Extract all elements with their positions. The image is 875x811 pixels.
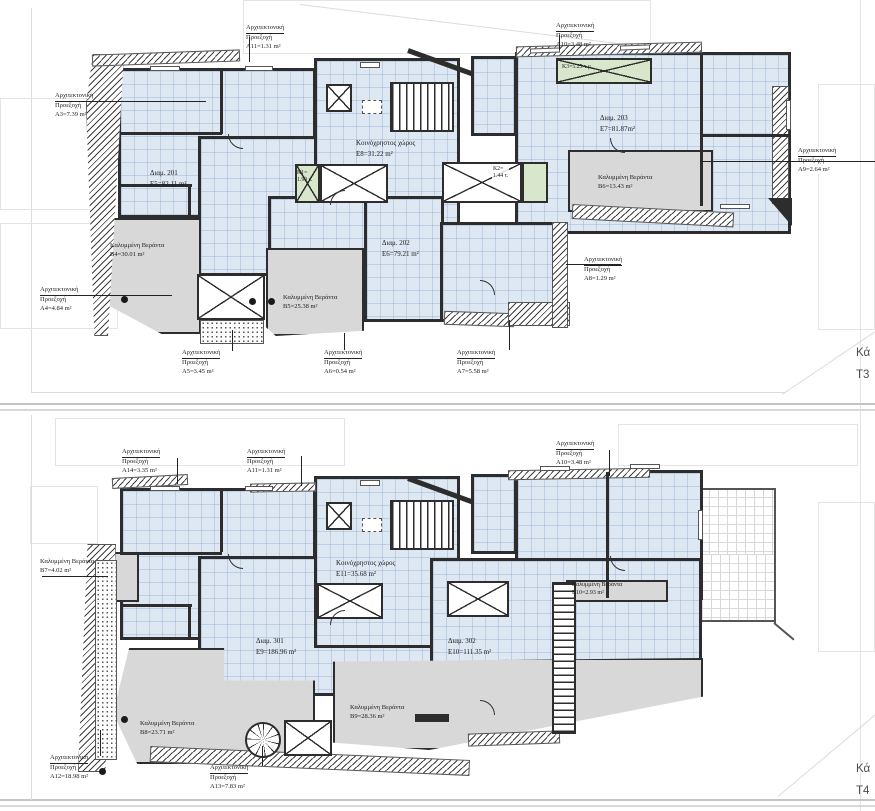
veranda-b8-label: Καλυμμένη ΒεράνταB8=23.71 m² — [140, 720, 194, 738]
projection-a4-label: Αρχιτεκτονική Προεξοχή A4=4.84 m² — [40, 286, 78, 313]
dark-wedge — [768, 198, 792, 226]
interior-wall — [188, 184, 191, 218]
leader-line — [249, 37, 250, 62]
plot-line — [31, 392, 786, 393]
hatched-projection — [552, 222, 568, 328]
hatched-projection-bottom — [468, 730, 560, 746]
elevator-shaft-xbox — [326, 84, 352, 112]
sheet-corner-label-t3: Κά T3 — [856, 342, 870, 387]
room-block-apartment-202b — [364, 196, 444, 322]
interior-wall — [220, 490, 223, 552]
projection-a14-label: Αρχιτεκτονική Προεξοχή A14=3.35 m² — [122, 448, 160, 475]
neighbor-outline — [818, 84, 875, 330]
interior-wall — [120, 552, 222, 555]
neighbor-outline — [618, 424, 858, 466]
projection-a12-label: Αρχιτεκτονική Προεξοχή A12=18.98 m² — [50, 754, 88, 781]
leader-line — [301, 456, 302, 486]
skylight-k2-label: K2=1.44 τ. — [492, 166, 509, 180]
interior-wall — [220, 70, 223, 134]
window — [786, 100, 791, 130]
leader-line — [609, 450, 610, 476]
dashed-duct-outline — [362, 518, 382, 532]
window — [698, 510, 703, 540]
floor-plan-t3: K1=1.90 τ. K2=1.44 τ. K3=5.25 τ.μ Διαμ. … — [0, 0, 875, 404]
veranda-b7-label: Καλυμμένη ΒεράνταB7=4.02 m² — [40, 558, 98, 576]
veranda-b5 — [266, 248, 364, 336]
column-dot — [268, 298, 275, 305]
leader-line — [566, 264, 621, 265]
window — [620, 44, 650, 50]
leader-line — [42, 295, 172, 296]
window — [245, 486, 273, 491]
apartment-202-label: Διαμ. 202E6=79.21 m² — [382, 238, 419, 259]
dotted-projection-left — [95, 560, 117, 760]
interior-wall — [700, 54, 703, 206]
veranda-b4-label: Καλυμμένη ΒεράνταB4=30.01 m² — [110, 242, 164, 260]
window — [150, 486, 180, 491]
leader-line — [232, 330, 233, 351]
floor-plan-t4: Διαμ. 301E9=186.96 m² Διαμ. 302E10=111.3… — [0, 410, 875, 811]
column-dot — [249, 298, 256, 305]
leader-line — [344, 333, 345, 350]
window — [720, 204, 750, 209]
common-area-label: Κοινόχρηστος χώροςE8=31.22 m² — [356, 138, 415, 159]
light-shaft-xbox — [317, 583, 383, 619]
interior-wall — [702, 134, 790, 137]
interior-wall — [188, 604, 191, 638]
projection-a11-label: Αρχιτεκτονική Προεξοχή A11=1.31 m² — [246, 24, 284, 51]
spiral-stair-symbol — [245, 722, 281, 758]
leader-line — [100, 730, 101, 756]
projection-a11-label: Αρχιτεκτονική Προεξοχή A11=1.31 m² — [247, 448, 285, 475]
veranda-b10-label: Καλυμμένη ΒεράνταB10=2.93 m² — [572, 582, 622, 597]
common-area-label: Κοινόχρηστος χώροςE11=35.68 m² — [336, 558, 395, 579]
interior-wall — [606, 472, 609, 598]
projection-a7-label: Αρχιτεκτονική Προεξοχή A7=5.58 m² — [457, 349, 495, 376]
terrace-edge — [774, 488, 776, 624]
skylight-k1-label: K1=1.90 τ. — [297, 170, 312, 184]
window — [360, 480, 380, 486]
leader-line — [509, 320, 510, 350]
apartment-203-label: Διαμ. 203E7=81.87m² — [600, 113, 635, 134]
dashed-duct-outline — [362, 100, 382, 114]
stair-symbol — [390, 82, 454, 132]
projection-a3-label: Αρχιτεκτονική Προεξοχή A3=7.39 m² — [55, 92, 93, 119]
projection-a13-label: Αρχιτεκτονική Προεξοχή A13=7.83 m² — [210, 764, 248, 791]
projection-a10-label: Αρχιτεκτονική Προεξοχή A10=3.48 m² — [556, 440, 594, 467]
projection-a10-label: Αρχιτεκτονική Προεξοχή A10=3.48 m² — [556, 22, 594, 49]
apartment-201-label: Διαμ. 201E5=82.11 m² — [150, 168, 187, 189]
elevator-shaft-xbox — [326, 502, 352, 530]
column-dot — [121, 296, 128, 303]
hatched-projection-top-left — [92, 49, 240, 66]
projection-a5-label: Αρχιτεκτονική Προεξοχή A5=3.45 m² — [182, 349, 220, 376]
room-block-top-small — [471, 474, 517, 554]
window — [630, 464, 660, 469]
neighbor-outline — [30, 486, 98, 544]
window — [360, 62, 380, 68]
bench-bar — [415, 714, 449, 722]
floor-plan-sheet: { "plans": [ { "corner_label": {"line1":… — [0, 0, 875, 811]
window — [150, 66, 180, 71]
veranda-b5-label: Καλυμμένη ΒεράνταB5=25.38 m² — [283, 294, 337, 312]
column-dot — [99, 768, 106, 775]
light-shaft-xbox — [284, 720, 332, 756]
veranda-b9-label: Καλυμμένη ΒεράνταB9=28.36 m² — [350, 704, 404, 722]
skylight-k3-label: K3=5.25 τ.μ — [562, 64, 591, 71]
column-dot — [121, 716, 128, 723]
interior-wall — [120, 604, 192, 607]
skylight-k2-box — [522, 162, 548, 203]
leader-line — [58, 101, 206, 102]
light-shaft-xbox — [442, 162, 522, 203]
stair-symbol — [390, 500, 454, 550]
projection-a6-label: Αρχιτεκτονική Προεξοχή A6=0.54 m² — [324, 349, 362, 376]
plot-line — [31, 415, 32, 800]
leader-line — [700, 161, 875, 162]
terrace-edge — [700, 488, 776, 490]
exterior-stair-symbol — [552, 582, 576, 734]
leader-line — [177, 458, 178, 484]
apartment-301-label: Διαμ. 301E9=186.96 m² — [256, 636, 296, 657]
apartment-302-label: Διαμ. 302E10=111.35 m² — [448, 636, 491, 657]
projection-a8-label: Αρχιτεκτονική Προεξοχή A8=1.29 m² — [584, 256, 622, 283]
sheet-corner-label-t4: Κά T4 — [856, 758, 870, 803]
window — [245, 66, 273, 71]
light-shaft-xbox — [447, 581, 509, 617]
leader-line — [262, 746, 263, 766]
room-block-top-small — [471, 56, 517, 136]
neighbor-outline — [818, 502, 875, 652]
leader-line — [42, 576, 108, 577]
interior-wall — [120, 132, 222, 135]
terrace-edge-diagonal — [773, 622, 794, 640]
leader-line — [559, 35, 560, 50]
veranda-b6-label: Καλυμμένη ΒεράνταB6=13.43 m² — [598, 174, 652, 192]
hatched-projection — [444, 311, 514, 327]
light-shaft-xbox — [320, 164, 388, 203]
light-shaft-xbox — [197, 274, 265, 320]
